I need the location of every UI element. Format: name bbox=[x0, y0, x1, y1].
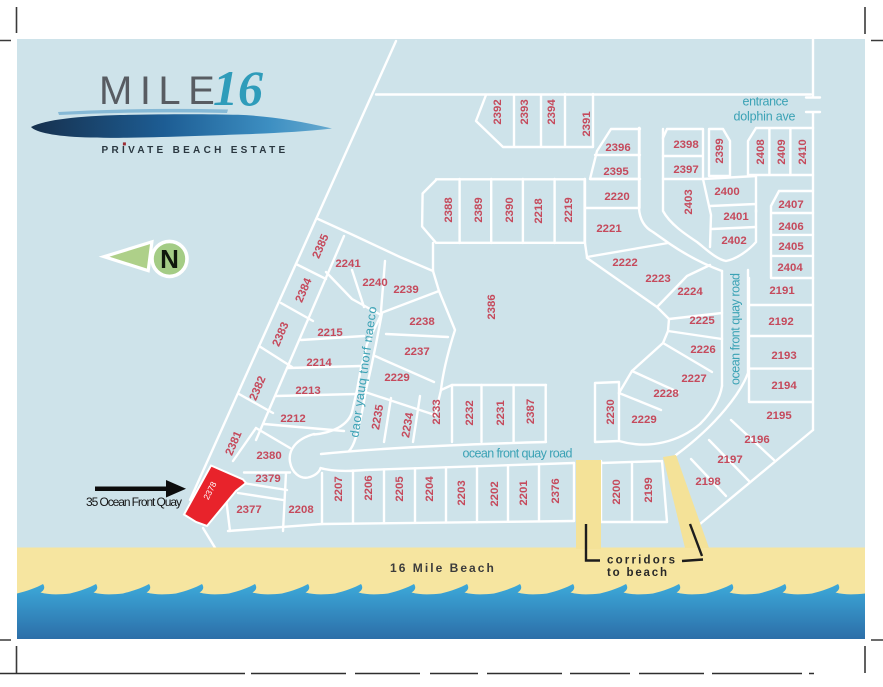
svg-text:2215: 2215 bbox=[317, 327, 343, 339]
svg-text:2386: 2386 bbox=[486, 294, 498, 319]
svg-text:2392: 2392 bbox=[492, 99, 504, 124]
svg-text:2240: 2240 bbox=[362, 277, 387, 289]
svg-text:corridors: corridors bbox=[607, 555, 675, 567]
svg-text:2391: 2391 bbox=[581, 111, 593, 137]
svg-text:to beach: to beach bbox=[607, 567, 667, 579]
svg-text:2222: 2222 bbox=[612, 257, 637, 269]
svg-text:2409: 2409 bbox=[776, 139, 788, 164]
svg-text:2196: 2196 bbox=[744, 434, 769, 446]
svg-text:2229: 2229 bbox=[631, 414, 656, 426]
svg-text:2197: 2197 bbox=[717, 454, 742, 466]
svg-text:2237: 2237 bbox=[404, 346, 429, 358]
svg-text:2396: 2396 bbox=[605, 142, 630, 154]
svg-text:2394: 2394 bbox=[546, 99, 558, 125]
svg-text:2406: 2406 bbox=[778, 221, 803, 233]
svg-text:2239: 2239 bbox=[393, 284, 418, 296]
svg-text:2393: 2393 bbox=[519, 99, 531, 124]
svg-text:2206: 2206 bbox=[363, 475, 375, 500]
svg-text:2193: 2193 bbox=[771, 350, 796, 362]
svg-text:2395: 2395 bbox=[603, 166, 629, 178]
svg-text:2402: 2402 bbox=[721, 235, 746, 247]
svg-text:16: 16 bbox=[213, 60, 263, 116]
svg-text:2212: 2212 bbox=[280, 413, 305, 425]
svg-text:2389: 2389 bbox=[473, 197, 485, 222]
svg-text:2241: 2241 bbox=[335, 258, 361, 270]
svg-text:2398: 2398 bbox=[673, 139, 698, 151]
svg-text:2224: 2224 bbox=[677, 286, 703, 298]
svg-text:2218: 2218 bbox=[533, 198, 545, 223]
svg-text:2390: 2390 bbox=[504, 197, 516, 222]
svg-text:2219: 2219 bbox=[563, 197, 575, 222]
svg-text:2400: 2400 bbox=[714, 186, 739, 198]
svg-text:2228: 2228 bbox=[653, 388, 678, 400]
svg-text:2405: 2405 bbox=[778, 241, 804, 253]
svg-text:ocean front quay road: ocean front quay road bbox=[729, 273, 743, 385]
svg-text:2232: 2232 bbox=[464, 400, 476, 425]
svg-text:2192: 2192 bbox=[768, 316, 793, 328]
svg-text:2380: 2380 bbox=[256, 450, 281, 462]
svg-text:2201: 2201 bbox=[518, 480, 530, 506]
svg-text:2198: 2198 bbox=[695, 476, 720, 488]
svg-text:PRIVATE BEACH ESTATE: PRIVATE BEACH ESTATE bbox=[102, 145, 289, 156]
svg-text:2401: 2401 bbox=[723, 211, 749, 223]
svg-text:2376: 2376 bbox=[550, 478, 562, 503]
svg-text:2194: 2194 bbox=[771, 380, 797, 392]
svg-text:2230: 2230 bbox=[605, 399, 617, 424]
svg-text:2238: 2238 bbox=[409, 316, 434, 328]
svg-text:2195: 2195 bbox=[766, 410, 792, 422]
svg-text:2213: 2213 bbox=[295, 385, 320, 397]
svg-text:2410: 2410 bbox=[797, 139, 809, 164]
svg-text:dolphin ave: dolphin ave bbox=[734, 110, 796, 124]
svg-text:35 Ocean Front Quay: 35 Ocean Front Quay bbox=[86, 495, 182, 509]
svg-text:2388: 2388 bbox=[443, 197, 455, 222]
svg-text:2207: 2207 bbox=[333, 476, 345, 501]
svg-text:2377: 2377 bbox=[236, 504, 261, 516]
svg-text:2191: 2191 bbox=[769, 285, 795, 297]
svg-text:2203: 2203 bbox=[456, 480, 468, 505]
svg-text:2397: 2397 bbox=[673, 164, 698, 176]
svg-text:2200: 2200 bbox=[611, 479, 623, 504]
svg-text:2231: 2231 bbox=[495, 400, 507, 426]
svg-text:2205: 2205 bbox=[394, 476, 406, 502]
svg-text:2220: 2220 bbox=[604, 191, 629, 203]
svg-text:MILE: MILE bbox=[99, 69, 222, 113]
svg-text:2223: 2223 bbox=[645, 273, 670, 285]
svg-text:16 Mile Beach: 16 Mile Beach bbox=[390, 561, 496, 575]
svg-text:2399: 2399 bbox=[714, 138, 726, 163]
svg-text:2403: 2403 bbox=[683, 189, 695, 214]
svg-text:2233: 2233 bbox=[431, 399, 443, 424]
svg-text:ocean front quay road: ocean front quay road bbox=[463, 447, 573, 461]
svg-text:2229: 2229 bbox=[384, 372, 409, 384]
svg-text:N: N bbox=[160, 244, 179, 274]
svg-text:2379: 2379 bbox=[255, 473, 280, 485]
svg-text:2208: 2208 bbox=[288, 504, 313, 516]
svg-text:2226: 2226 bbox=[690, 344, 715, 356]
svg-text:2225: 2225 bbox=[689, 315, 715, 327]
svg-text:2227: 2227 bbox=[681, 373, 706, 385]
svg-text:2214: 2214 bbox=[306, 357, 332, 369]
svg-text:2221: 2221 bbox=[596, 223, 622, 235]
svg-text:2202: 2202 bbox=[489, 481, 501, 506]
svg-text:2408: 2408 bbox=[755, 139, 767, 164]
svg-text:2407: 2407 bbox=[778, 199, 803, 211]
svg-text:2204: 2204 bbox=[424, 476, 436, 502]
svg-text:entrance: entrance bbox=[743, 95, 789, 109]
svg-text:2404: 2404 bbox=[777, 262, 803, 274]
svg-text:2199: 2199 bbox=[643, 477, 655, 502]
svg-text:2387: 2387 bbox=[525, 399, 537, 424]
